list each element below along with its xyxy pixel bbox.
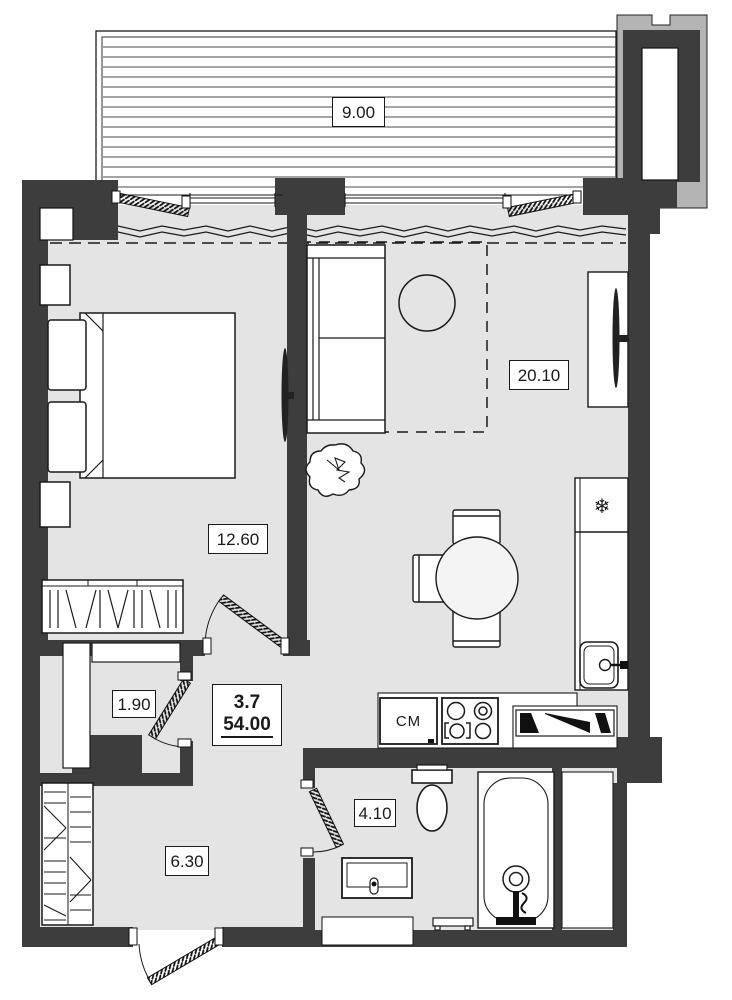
bathroom-vanity-sink	[342, 858, 412, 898]
washing-machine-label: СМ	[380, 700, 437, 742]
pillow	[48, 402, 86, 472]
closet-area-label: 1.90	[112, 690, 156, 718]
entry-door	[139, 936, 223, 985]
service-shaft	[562, 772, 613, 928]
unit-number: 3.7	[234, 693, 260, 712]
dining-table	[436, 537, 518, 619]
bedroom-wardrobe	[42, 580, 183, 633]
plant	[306, 444, 365, 496]
living-room-tv	[588, 272, 628, 407]
shaft-opening	[642, 48, 678, 180]
bedroom-area-label: 12.60	[208, 524, 268, 554]
sofa	[307, 245, 385, 433]
freezer-icon: ❄	[588, 492, 616, 520]
bathtub	[478, 772, 554, 928]
nightstand	[40, 265, 70, 305]
bathroom-area-label: 4.10	[354, 799, 396, 827]
floorplan-drawing	[0, 0, 732, 1000]
hallway-area-label: 6.30	[165, 846, 209, 876]
bathroom-wall-niche	[322, 917, 413, 945]
hallway-wardrobe	[42, 783, 93, 925]
cooktop	[442, 698, 498, 744]
unit-total-area: 54.00	[221, 715, 273, 738]
nightstand	[40, 482, 70, 527]
unit-summary-box: 3.7 54.00	[212, 684, 282, 746]
faucet-icon	[620, 661, 628, 669]
pillow	[48, 320, 86, 390]
wall-niche	[40, 208, 73, 240]
floorplan-canvas: 9.00 20.10 12.60 1.90 6.30 4.10 3.7 54.0…	[0, 0, 732, 1000]
living-room-area-label: 20.10	[509, 360, 569, 390]
balcony-area-label: 9.00	[332, 97, 385, 127]
vent-grille	[513, 706, 617, 748]
